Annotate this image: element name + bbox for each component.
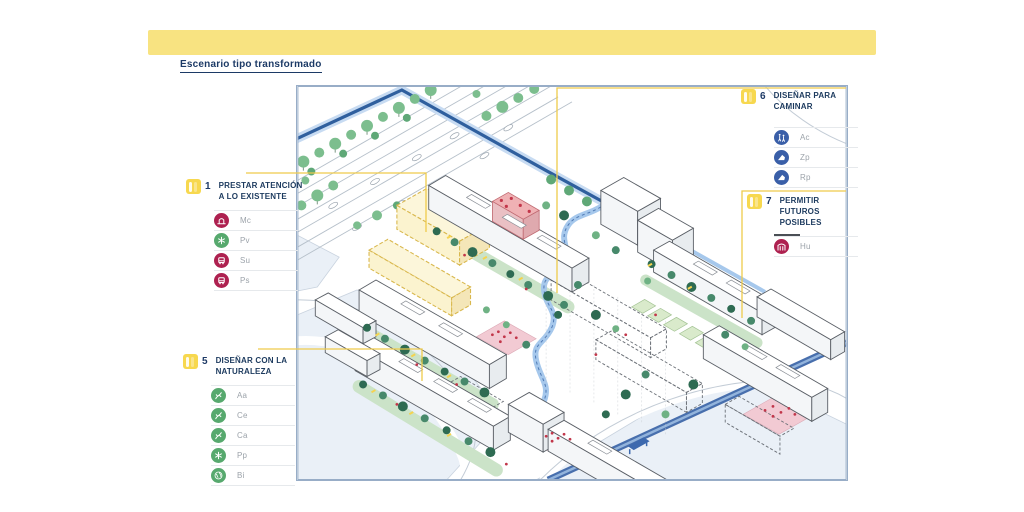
- legend-item-code: Su: [240, 256, 250, 265]
- legend-item-code: Hu: [800, 242, 811, 251]
- legend-item: Rp: [774, 168, 858, 188]
- legend-item: Hu: [774, 237, 858, 257]
- bus-icon: [214, 273, 229, 288]
- callout-title: PRESTAR ATENCIÓN A LO EXISTENTE: [219, 181, 303, 203]
- arch-icon: [774, 239, 789, 254]
- legend-item: Pp: [211, 446, 295, 466]
- legend-item: Zp: [774, 148, 858, 168]
- callout-number: 7: [766, 196, 772, 207]
- legend-item: Ca: [211, 426, 295, 446]
- globe-icon: [211, 468, 226, 483]
- callout-number: 5: [202, 356, 208, 367]
- callout-futuros-posibles: 7 PERMITIR FUTUROS POSIBLES Hu: [747, 194, 858, 257]
- legend-item: Ps: [214, 271, 298, 291]
- legend-item-code: Rp: [800, 173, 811, 182]
- legend-item-code: Zp: [800, 153, 810, 162]
- legend-item: Aa: [211, 386, 295, 406]
- legend-item-code: Mc: [240, 216, 251, 225]
- legend-item: Mc: [214, 211, 298, 231]
- callout-disenar-naturaleza: 5 DISEÑAR CON LA NATURALEZA Aa Ce Ca: [183, 354, 300, 486]
- legend-item-code: Ps: [240, 276, 250, 285]
- header-banner: [148, 30, 876, 55]
- legend-item-code: Pv: [240, 236, 250, 245]
- callout-badge-icon: [186, 179, 201, 194]
- legend-item-code: Bi: [237, 471, 245, 480]
- legend-item-code: Ce: [237, 411, 248, 420]
- callout-title: DISEÑAR PARA CAMINAR: [774, 91, 858, 113]
- bus-icon: [214, 253, 229, 268]
- callout-prestar-atencion: 1 PRESTAR ATENCIÓN A LO EXISTENTE Mc Pv: [186, 179, 303, 291]
- legend-item: Pv: [214, 231, 298, 251]
- legend-item: Ac: [774, 128, 858, 148]
- page-title: Escenario tipo transformado: [180, 59, 322, 73]
- callout-number: 1: [205, 181, 211, 192]
- branch-icon: [211, 428, 226, 443]
- callout-badge-icon: [741, 89, 756, 104]
- page: Escenario tipo transformado: [0, 0, 1024, 512]
- pedestrians-icon: [774, 130, 789, 145]
- legend-item-code: Pp: [237, 451, 247, 460]
- legend-item: Su: [214, 251, 298, 271]
- callout-disenar-caminar: 6 DISEÑAR PARA CAMINAR Ac Zp Rp: [741, 89, 858, 188]
- legend-item-code: Ac: [800, 133, 810, 142]
- legend-item-code: Aa: [237, 391, 247, 400]
- branch-icon: [211, 408, 226, 423]
- legend-item: Bi: [211, 466, 295, 486]
- callout-number: 6: [760, 91, 766, 102]
- branch-icon: [211, 388, 226, 403]
- callout-badge-icon: [747, 194, 762, 209]
- monument-icon: [214, 213, 229, 228]
- legend-item-code: Ca: [237, 431, 248, 440]
- callout-title: DISEÑAR CON LA NATURALEZA: [216, 356, 300, 378]
- callout-badge-icon: [183, 354, 198, 369]
- footpath-icon: [774, 150, 789, 165]
- footpath-icon: [774, 170, 789, 185]
- legend-item: Ce: [211, 406, 295, 426]
- callout-title: PERMITIR FUTUROS POSIBLES: [780, 196, 858, 228]
- plant-icon: [211, 448, 226, 463]
- plant-icon: [214, 233, 229, 248]
